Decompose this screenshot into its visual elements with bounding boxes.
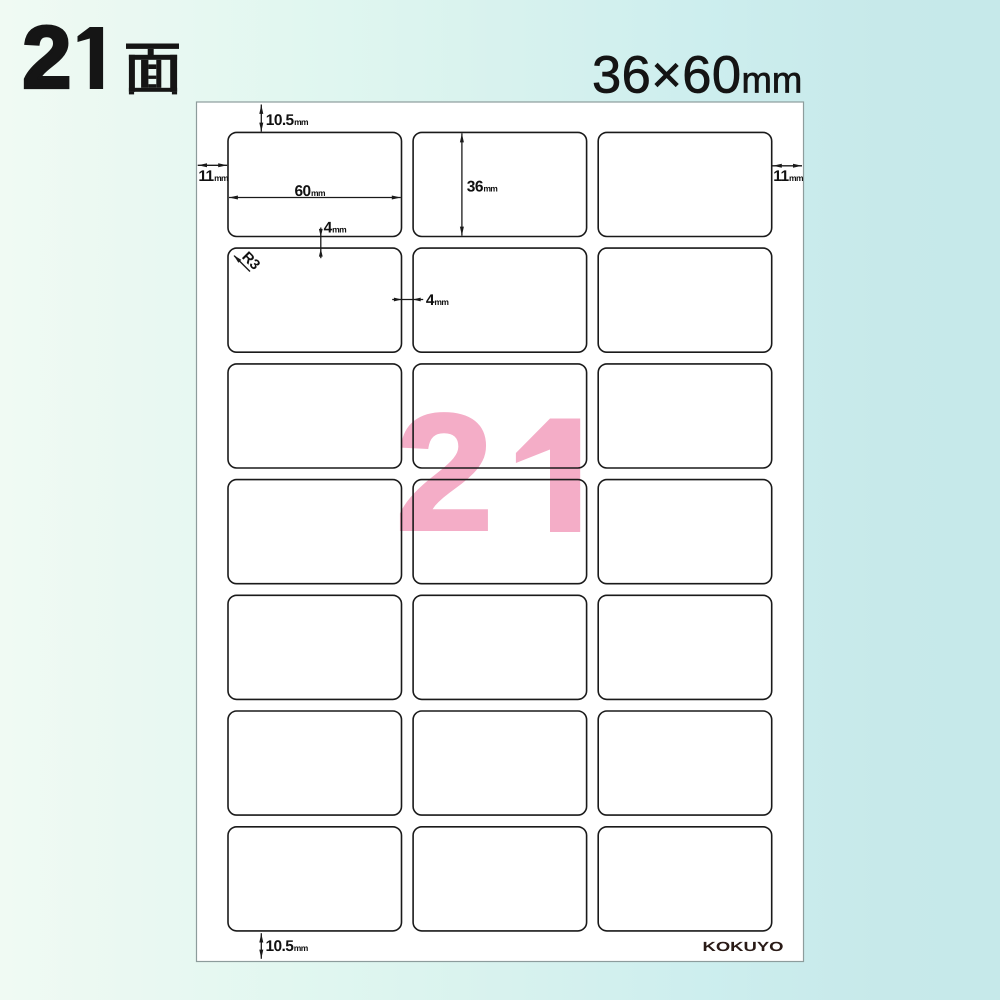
svg-text:2: 2: [395, 381, 493, 566]
svg-text:KOKUYO: KOKUYO: [703, 939, 784, 954]
svg-text:2: 2: [22, 7, 71, 106]
svg-text:36×60mm: 36×60mm: [592, 46, 802, 105]
